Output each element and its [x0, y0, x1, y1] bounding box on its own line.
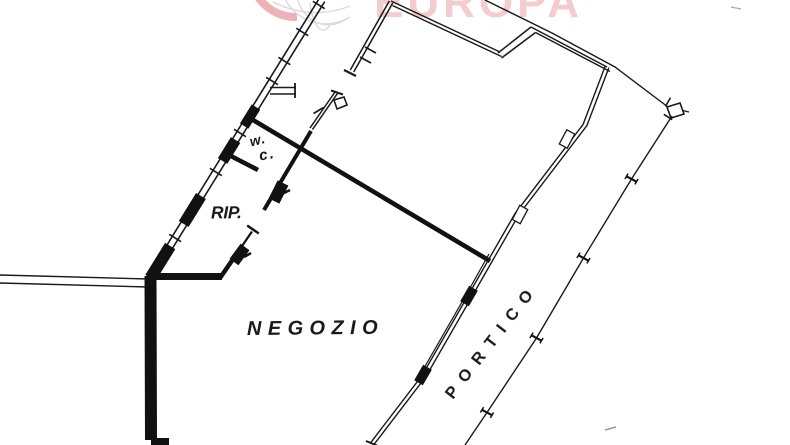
- svg-text:EUROPA: EUROPA: [374, 0, 583, 27]
- svg-text:NEGOZIO: NEGOZIO: [247, 317, 384, 340]
- svg-text:c.: c.: [258, 145, 277, 165]
- svg-text:PORTICO: PORTICO: [442, 279, 543, 402]
- svg-text:RIP.: RIP.: [211, 202, 242, 222]
